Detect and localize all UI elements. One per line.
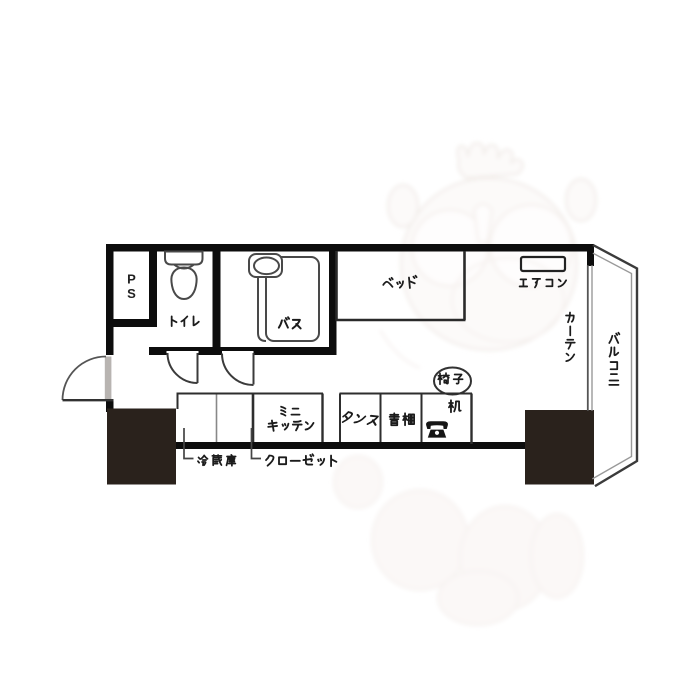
- svg-text:P: P: [127, 272, 136, 287]
- svg-text:S: S: [127, 286, 136, 301]
